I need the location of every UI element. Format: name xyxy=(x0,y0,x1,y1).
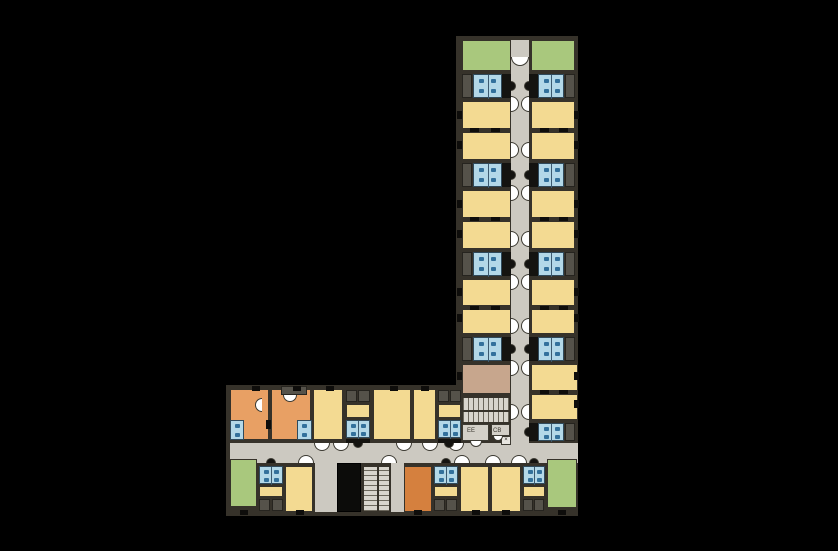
bathroom-pod xyxy=(538,163,564,187)
bathroom-pod xyxy=(523,466,545,484)
wall-mark xyxy=(326,386,334,391)
room-brown xyxy=(462,364,511,394)
room-yellow xyxy=(285,466,313,512)
bathroom-pod xyxy=(473,163,502,187)
closet xyxy=(438,390,449,402)
service-shaft xyxy=(529,74,538,98)
wall-mark xyxy=(472,510,480,515)
wall-mark xyxy=(457,314,462,322)
room-yellow xyxy=(531,364,578,391)
wall-mark xyxy=(421,386,429,391)
wall-mark xyxy=(540,217,549,221)
wall-mark xyxy=(574,314,579,322)
room-orange_dark xyxy=(404,466,432,512)
bathroom-pod xyxy=(434,466,458,484)
wall-mark xyxy=(457,288,462,296)
shaft-door-icon xyxy=(266,458,276,463)
fixture-icon xyxy=(555,79,560,83)
wall-mark xyxy=(558,510,566,515)
bathroom-pod xyxy=(538,74,564,98)
fixture-icon xyxy=(544,168,549,172)
wall-mark xyxy=(457,372,462,380)
room-yellow xyxy=(462,221,511,249)
wall-mark xyxy=(574,230,579,238)
fixture-icon xyxy=(351,432,356,436)
room-yellow xyxy=(373,389,411,440)
fixture-icon xyxy=(555,168,560,172)
wall-mark xyxy=(491,217,500,221)
fixture-icon xyxy=(264,478,269,482)
bathroom-pod xyxy=(346,420,370,438)
pod-divider xyxy=(534,467,535,485)
fixture-icon xyxy=(479,352,484,356)
fixture-icon xyxy=(351,424,356,428)
service-shaft xyxy=(502,163,511,187)
room-yellow xyxy=(462,132,511,160)
fixture-icon xyxy=(544,178,549,182)
fixture-icon xyxy=(491,178,496,182)
service-shaft xyxy=(529,423,538,441)
closet xyxy=(259,499,270,511)
fixture-icon xyxy=(264,470,269,474)
closet xyxy=(462,163,472,187)
fixture-icon xyxy=(537,470,542,474)
fixture-icon xyxy=(555,89,560,93)
room-label: EE xyxy=(467,428,481,435)
shaft-door-icon xyxy=(529,458,539,463)
pod-divider xyxy=(488,164,489,188)
fixture-icon xyxy=(537,478,542,482)
room-yellow xyxy=(531,101,575,129)
wall-mark xyxy=(470,128,479,132)
bathroom-pod xyxy=(438,420,461,438)
wall-mark xyxy=(574,200,579,208)
fixture-icon xyxy=(479,89,484,93)
room-yellow xyxy=(413,389,436,440)
fixture-icon xyxy=(443,424,448,428)
room-yellow xyxy=(462,279,511,306)
pod-divider xyxy=(271,467,272,485)
pod-divider xyxy=(488,253,489,277)
bathroom-pod xyxy=(538,337,564,361)
fixture-icon xyxy=(453,424,458,428)
shaft-door-icon xyxy=(524,259,529,269)
fixture-icon xyxy=(479,168,484,172)
fixture-icon xyxy=(555,342,560,346)
closet xyxy=(462,74,472,98)
wall-mark xyxy=(559,217,568,221)
wall-mark xyxy=(470,217,479,221)
stair-landing-divider xyxy=(463,410,511,412)
room-yellow xyxy=(531,394,578,420)
wall-mark xyxy=(266,420,271,429)
staircase xyxy=(462,397,510,423)
wall-mark xyxy=(540,390,549,394)
room-yellow xyxy=(462,309,511,334)
fixture-icon xyxy=(528,470,533,474)
fixture-icon xyxy=(479,257,484,261)
shaft-door-icon xyxy=(524,81,529,91)
fixture-icon xyxy=(491,352,496,356)
fixture-icon xyxy=(491,79,496,83)
fixture-icon xyxy=(544,267,549,271)
fixture-icon xyxy=(449,478,454,482)
room-label: CB xyxy=(493,428,507,435)
room-yellow xyxy=(531,190,575,218)
pod-divider xyxy=(446,467,447,485)
fixture-icon xyxy=(491,267,496,271)
bathroom-pod xyxy=(538,252,564,276)
fixture-icon xyxy=(361,432,366,436)
pod-divider xyxy=(551,338,552,362)
wall-mark xyxy=(293,386,301,391)
closet xyxy=(534,499,544,511)
closet xyxy=(462,252,472,276)
pod-divider xyxy=(551,424,552,442)
pod-divider xyxy=(551,75,552,99)
pod-divider xyxy=(488,75,489,99)
wall-mark xyxy=(559,128,568,132)
wall-mark xyxy=(574,288,579,296)
closet xyxy=(446,499,457,511)
room-green xyxy=(462,40,511,71)
fixture-icon xyxy=(544,257,549,261)
room-yellow xyxy=(434,486,458,497)
fixture-icon xyxy=(235,424,240,428)
bathroom-pod xyxy=(538,423,564,441)
shaft-door-icon xyxy=(524,170,529,180)
fixture-icon xyxy=(555,257,560,261)
room-yellow xyxy=(462,101,511,129)
fixture-icon xyxy=(555,352,560,356)
fixture-icon xyxy=(555,435,560,439)
pod-divider xyxy=(551,164,552,188)
wall-mark xyxy=(574,111,579,119)
bathroom-pod xyxy=(473,74,502,98)
room-yellow xyxy=(438,404,461,418)
floor-plan: ×EECB xyxy=(0,0,838,551)
closet xyxy=(346,390,357,402)
fixture-icon xyxy=(491,168,496,172)
closet xyxy=(565,252,575,276)
room-yellow xyxy=(313,389,343,440)
fixture-icon xyxy=(479,79,484,83)
wall-mark xyxy=(540,306,549,310)
room-yellow xyxy=(531,221,575,249)
fixture-icon xyxy=(491,89,496,93)
bathroom-pod xyxy=(473,337,502,361)
fixture-icon xyxy=(479,178,484,182)
pod-divider xyxy=(488,338,489,362)
fixture-icon xyxy=(274,478,279,482)
fixture-icon xyxy=(302,424,307,428)
door-swing-icon xyxy=(255,398,262,412)
room-yellow xyxy=(531,309,575,334)
fixture-icon xyxy=(555,267,560,271)
closet xyxy=(565,423,575,441)
room-yellow xyxy=(531,132,575,160)
fixture-icon xyxy=(528,478,533,482)
wall-mark xyxy=(457,230,462,238)
wall-mark xyxy=(574,141,579,149)
wall-mark xyxy=(240,510,248,515)
fixture-icon xyxy=(302,433,307,437)
fixture-icon xyxy=(439,470,444,474)
shaft-door-icon xyxy=(441,458,451,463)
fixture-icon xyxy=(443,432,448,436)
shaft-door-icon xyxy=(524,344,529,354)
pod-divider xyxy=(358,421,359,439)
wall-mark xyxy=(470,306,479,310)
fixture-icon xyxy=(449,470,454,474)
wall-mark xyxy=(540,128,549,132)
room-green xyxy=(547,459,577,508)
wall-mark xyxy=(502,510,510,515)
room-yellow xyxy=(462,190,511,218)
bathroom-pod xyxy=(259,466,283,484)
fixture-icon xyxy=(544,342,549,346)
wall-mark xyxy=(491,306,500,310)
fixture-icon xyxy=(544,435,549,439)
closet xyxy=(450,390,461,402)
wall-mark xyxy=(491,128,500,132)
fixture-icon xyxy=(491,257,496,261)
fixture-icon xyxy=(555,178,560,182)
service-shaft xyxy=(529,252,538,276)
service-shaft xyxy=(502,337,511,361)
fixture-icon xyxy=(453,432,458,436)
stair-landing-divider xyxy=(377,467,379,513)
corridor xyxy=(315,463,337,512)
closet xyxy=(565,163,575,187)
service-shaft xyxy=(502,74,511,98)
service-shaft xyxy=(502,252,511,276)
wall-mark xyxy=(252,386,260,391)
room-yellow xyxy=(523,486,545,497)
service-shaft xyxy=(529,163,538,187)
wall-mark xyxy=(457,111,462,119)
fixture-icon xyxy=(479,342,484,346)
corridor xyxy=(391,463,404,512)
room-yellow xyxy=(531,279,575,306)
wall-mark xyxy=(390,386,398,391)
pod-divider xyxy=(551,253,552,277)
shaft-door-icon xyxy=(524,427,529,437)
room-green xyxy=(230,459,257,507)
pod-divider xyxy=(450,421,451,439)
fixture-icon xyxy=(479,267,484,271)
closet xyxy=(523,499,533,511)
bathroom-pod xyxy=(473,252,502,276)
fixture-icon xyxy=(544,89,549,93)
service-shaft xyxy=(529,337,538,361)
room-yellow xyxy=(491,466,521,512)
closet xyxy=(462,337,472,361)
closet xyxy=(434,499,445,511)
elevator-shaft xyxy=(337,463,361,512)
room-yellow xyxy=(346,404,370,418)
wall-mark xyxy=(457,200,462,208)
wall-mark xyxy=(559,306,568,310)
fixture-icon xyxy=(544,427,549,431)
closet xyxy=(565,74,575,98)
fixture-icon xyxy=(361,424,366,428)
wall-mark xyxy=(457,141,462,149)
wall-mark xyxy=(574,372,579,380)
closet xyxy=(358,390,370,402)
wall-mark xyxy=(296,510,304,515)
room-yellow xyxy=(460,466,489,512)
closet xyxy=(565,337,575,361)
fixture-icon xyxy=(274,470,279,474)
fixture-icon xyxy=(544,79,549,83)
wall-mark xyxy=(414,510,422,515)
room-green xyxy=(531,40,575,71)
fixture-icon xyxy=(491,342,496,346)
staircase xyxy=(363,466,390,512)
fixture-icon xyxy=(439,478,444,482)
wall-mark xyxy=(574,400,579,408)
bathroom-pod xyxy=(230,420,244,440)
bathroom-pod xyxy=(297,420,312,440)
fixture-icon xyxy=(235,433,240,437)
wall-mark xyxy=(559,390,568,394)
fixture-icon xyxy=(555,427,560,431)
fixture-icon xyxy=(544,352,549,356)
closet xyxy=(272,499,283,511)
room-yellow xyxy=(259,486,283,497)
